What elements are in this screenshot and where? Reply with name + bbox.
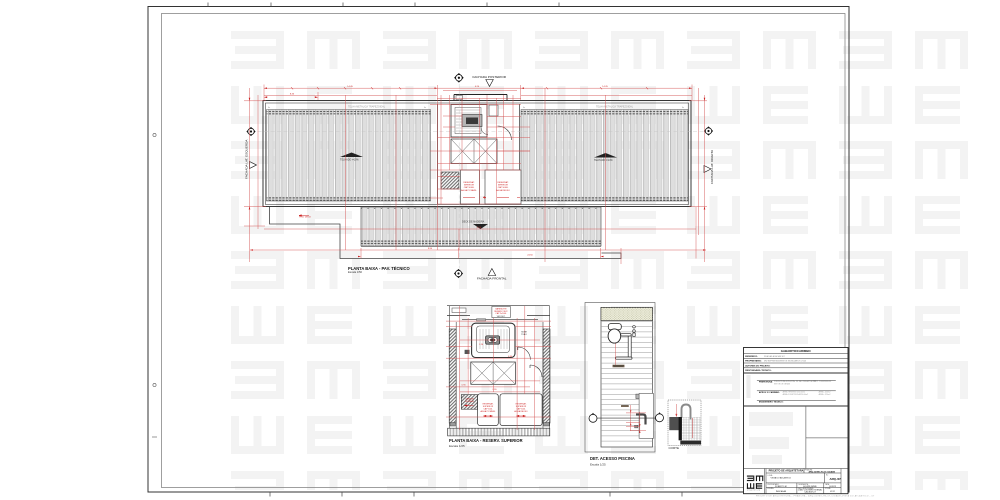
svg-text:Escala 1/25: Escala 1/25 (449, 444, 465, 448)
svg-text:DECK DE MADEIRA: DECK DE MADEIRA (462, 221, 485, 224)
svg-text:PLANTA BAIXA - RESERV. SUPERIO: PLANTA BAIXA - RESERV. SUPERIOR (449, 438, 523, 443)
svg-text:ARQ-02/MO-H3-07-CIDADE: ARQ-02/MO-H3-07-CIDADE (809, 471, 836, 474)
svg-text:SETOR DE OBRAS: SETOR DE OBRAS (774, 383, 791, 386)
svg-text:ROBERTO M.: ROBERTO M. (775, 486, 787, 488)
svg-text:4x: 4x (523, 107, 525, 109)
svg-text:FACHADA POSTERIOR: FACHADA POSTERIOR (473, 75, 507, 79)
svg-text:GABARITO/CARIMBO: GABARITO/CARIMBO (781, 349, 812, 353)
svg-text:INDICADAS: INDICADAS (776, 490, 787, 493)
svg-text:14.45: 14.45 (602, 86, 608, 88)
svg-text:CAP 5000L: CAP 5000L (464, 186, 475, 189)
svg-text:CAU A107-07: CAU A107-07 (804, 491, 816, 494)
svg-text:PROC. N 000/0000-00: PROC. N 000/0000-00 (813, 381, 831, 383)
svg-text:24.50: 24.50 (527, 255, 533, 257)
svg-text:TUBO: TUBO (521, 334, 527, 336)
svg-text:AREA - 320m2: AREA - 320m2 (819, 393, 831, 396)
svg-text:PROPRIETARIO:: PROPRIETARIO: (745, 360, 762, 363)
svg-text:PISO DECK: PISO DECK (299, 217, 311, 219)
svg-text:RESERVAT.: RESERVAT. (497, 181, 509, 184)
svg-text:RESPONSAVEL TECNICO:: RESPONSAVEL TECNICO: (745, 369, 771, 372)
svg-text:AGUA POTAVEL: AGUA POTAVEL (480, 410, 496, 413)
svg-text:14.45: 14.45 (347, 86, 353, 88)
svg-text:EQUIPE 3MWE: EQUIPE 3MWE (803, 486, 817, 488)
svg-text:4x: 4x (424, 107, 426, 109)
svg-text:TELHA METALICA TRAPEZOIDAL: TELHA METALICA TRAPEZOIDAL (348, 106, 386, 109)
svg-text:ARQ-/07: ARQ-/07 (830, 477, 842, 481)
svg-text:DET. ACESSO PISCINA: DET. ACESSO PISCINA (590, 456, 635, 461)
svg-text:APROV. E CARIMBO:: APROV. E CARIMBO: (759, 391, 780, 394)
svg-text:CORTE: CORTE (669, 446, 679, 450)
svg-text:FACHADA FRONTAL: FACHADA FRONTAL (477, 277, 507, 281)
svg-text:4x: 4x (682, 107, 684, 109)
svg-text:10/2023: 10/2023 (829, 486, 836, 488)
svg-text:ENDERECO:: ENDERECO: (745, 356, 758, 358)
svg-text:CAP 5000L: CAP 5000L (498, 186, 509, 189)
svg-text:4x: 4x (268, 107, 270, 109)
svg-text:VISTA DO ATLANTICO: VISTA DO ATLANTICO (771, 476, 792, 479)
svg-text:AGUA POTAVEL: AGUA POTAVEL (461, 189, 477, 192)
svg-text:AGUA REUSO: AGUA REUSO (496, 189, 510, 192)
svg-text:VER DET.: VER DET. (497, 316, 506, 318)
svg-text:FACHADA LAT. ESQUERDA: FACHADA LAT. ESQUERDA (245, 139, 249, 179)
svg-text:Escala 1/50: Escala 1/50 (348, 270, 363, 274)
svg-text:FACHADA LAT. DIREITA: FACHADA LAT. DIREITA (710, 149, 714, 184)
svg-text:RUA DAS ACACIAS 307: RUA DAS ACACIAS 307 (764, 355, 785, 358)
svg-text:TELHADO i=10%: TELHADO i=10% (340, 159, 360, 162)
svg-text:TELHA METALICA TRAPEZOIDAL: TELHA METALICA TRAPEZOIDAL (596, 106, 634, 109)
svg-text:AUTORES DO PROJETO:: AUTORES DO PROJETO: (745, 364, 770, 367)
svg-text:RESERVAT.: RESERVAT. (463, 181, 475, 184)
svg-text:PROJETO DE ARQUITETURA: PROJETO DE ARQUITETURA (769, 470, 804, 473)
svg-text:CAP 2x500L: CAP 2x500L (495, 312, 507, 315)
svg-text:ENGENHEIRO TECNICO:: ENGENHEIRO TECNICO: (759, 402, 784, 404)
svg-text:PREFEITURA:: PREFEITURA: (759, 380, 773, 383)
svg-text:PROJETO DE ARQUITETURA - PRA: PROJETO DE ARQUITETURA - PRANCHA - ARQ-0… (756, 495, 875, 498)
svg-text:AREA CONSTRUIDA 320.00m2: AREA CONSTRUIDA 320.00m2 (783, 393, 809, 396)
svg-text:BOMBAS: BOMBAS (465, 400, 474, 403)
svg-text:AGUA REUSO: AGUA REUSO (514, 410, 528, 413)
svg-text:MW EMPREENDIMENTOS IMOBILIARIO: MW EMPREENDIMENTOS IMOBILIARIOS LTDA (764, 360, 806, 363)
svg-text:TELHADO i=10%: TELHADO i=10% (594, 159, 614, 162)
svg-text:Escala 1/25: Escala 1/25 (590, 462, 606, 466)
svg-text:07/12: 07/12 (830, 491, 835, 493)
